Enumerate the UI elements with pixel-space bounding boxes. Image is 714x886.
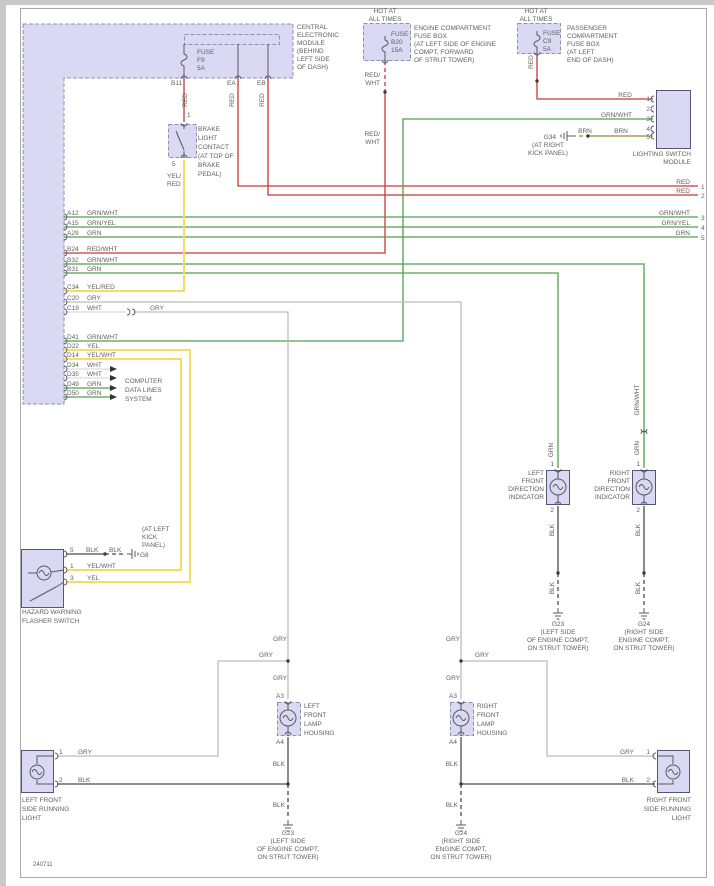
ground-g23-indicator-icon [553, 608, 563, 619]
label-g23: G23 [282, 830, 295, 837]
label-grn: GRN [548, 442, 555, 457]
label-blk: BLK [78, 777, 91, 784]
label-red-wht: RED/WHT [87, 246, 117, 253]
label-grn: GRN [87, 381, 102, 388]
label-all-times: ALL TIMES [520, 16, 554, 23]
label-wht: WHT [87, 362, 102, 369]
label-d50: D50 [67, 390, 79, 397]
label-blk: BLK [273, 761, 286, 768]
label-2: 2 [646, 106, 650, 113]
label-system: SYSTEM [125, 396, 152, 403]
label-yel: YEL/ [167, 173, 181, 180]
pin-connector-icon [651, 106, 654, 112]
label-1: 1 [701, 184, 705, 191]
label-a15: A15 [67, 220, 79, 227]
label-f9: F9 [197, 57, 205, 64]
label-of-strut-tower: OF STRUT TOWER) [414, 57, 474, 64]
label-lighting-switch: LIGHTING SWITCH [633, 151, 691, 158]
label-yel-red: YEL/RED [87, 284, 115, 291]
label-grn-yel: GRN/YEL [661, 220, 690, 227]
label-compartment: COMPARTMENT [567, 33, 617, 40]
label-red: RED [182, 93, 189, 107]
label-red: RED [229, 93, 236, 107]
label-red: RED [676, 188, 690, 195]
label-blk: BLK [86, 547, 99, 554]
label-1: 1 [646, 96, 650, 103]
splice-dot [459, 782, 462, 785]
label-a3: A3 [449, 693, 457, 700]
data-line-arrow-icon [110, 375, 117, 381]
label-grn-wht: GRN/WHT [87, 257, 118, 264]
label-fuse-box: FUSE BOX [414, 33, 448, 40]
label-yel: YEL [87, 343, 100, 350]
label-fuse: FUSE [197, 49, 215, 56]
label-blk: BLK [446, 802, 459, 809]
label-d14: D14 [67, 352, 79, 359]
wire-redwht-to-b24 [64, 92, 385, 253]
wire-gry-c20-to-right-lamp [64, 302, 461, 699]
label-gry: GRY [273, 675, 288, 682]
label-brn: BRN [578, 128, 592, 135]
ground-g34-lsm-icon [561, 131, 572, 141]
label-gry: GRY [259, 652, 274, 659]
label-blk: BLK [109, 547, 122, 554]
label-front: FRONT [522, 478, 544, 485]
page-border [21, 9, 707, 878]
label-central: CENTRAL [297, 24, 328, 31]
label-left-side: LEFT SIDE [297, 56, 330, 63]
label-housing: HOUSING [304, 730, 334, 737]
splice-dot [556, 571, 559, 574]
label-gry: GRY [620, 749, 635, 756]
label-b24: B24 [67, 246, 79, 253]
label-a4: A4 [276, 739, 284, 746]
label-yel-wht: YEL/WHT [87, 563, 116, 570]
label-red: RED/ [364, 72, 380, 79]
splice-dot [642, 571, 645, 574]
label-grn-wht: GRN/WHT [634, 384, 641, 415]
label-red: RED [259, 93, 266, 107]
label-pedal: PEDAL) [198, 171, 221, 178]
label-light: LIGHT [22, 815, 41, 822]
label-grn: GRN [87, 390, 102, 397]
wiring-diagram-page: HOT ATALL TIMESENGINE COMPARTMENTFUSE BO… [0, 0, 714, 886]
label-grn-wht: GRN/WHT [601, 112, 632, 119]
label-engine-compartment: ENGINE COMPARTMENT [414, 25, 491, 32]
label-right: RIGHT [477, 703, 497, 710]
label-5a: 5A [197, 65, 206, 72]
splice-dot [286, 782, 289, 785]
label-kick-panel: KICK PANEL) [528, 150, 568, 157]
label-right-side: (RIGHT SIDE [624, 629, 664, 636]
lighting-switch-module [657, 91, 691, 149]
wiring-diagram-canvas: HOT ATALL TIMESENGINE COMPARTMENTFUSE BO… [0, 0, 714, 886]
label-brake: BRAKE [198, 126, 221, 133]
label-blk: BLK [622, 777, 635, 784]
label-red: RED [618, 92, 632, 99]
central-electronic-module [23, 24, 293, 404]
pin-connector-icon [64, 551, 67, 557]
label-light: LIGHT [198, 135, 217, 142]
label-all-times: ALL TIMES [369, 16, 403, 23]
label-panel: PANEL) [142, 542, 165, 549]
scan-edge-top [0, 0, 714, 5]
label-yel-wht: YEL/WHT [87, 352, 116, 359]
label-g23: G23 [552, 621, 565, 628]
label-light: LIGHT [672, 815, 691, 822]
data-line-arrow-icon [110, 394, 117, 400]
label-1: 1 [550, 461, 554, 468]
label-eb: EB [257, 80, 266, 87]
label-right: RIGHT [610, 470, 630, 477]
label-blk: BLK [273, 802, 286, 809]
label-1: 1 [646, 749, 650, 756]
label-gry: GRY [446, 636, 461, 643]
label-grn: GRN [87, 266, 102, 273]
label-front: FRONT [477, 712, 499, 719]
brake-light-contact [169, 125, 197, 158]
label-blk: BLK [635, 581, 642, 594]
hazard-warning-flasher-switch [22, 550, 64, 608]
label-flasher-switch: FLASHER SWITCH [22, 618, 80, 625]
label-4: 4 [701, 225, 705, 232]
passenger-compartment-fuse-box [518, 24, 561, 54]
label-d34: D34 [67, 362, 79, 369]
label-2: 2 [636, 507, 640, 514]
wire-gry-c19-to-left-lamp [134, 312, 288, 699]
label-d41: D41 [67, 334, 79, 341]
pin-connector-icon [651, 126, 654, 132]
label-of-dash: OF DASH) [297, 64, 328, 71]
label-side-running: SIDE RUNNING [644, 806, 691, 813]
label-5: 5 [701, 235, 705, 242]
label-wht: WHT [87, 305, 102, 312]
label-grn-yel: GRN/YEL [87, 220, 116, 227]
label-d35: D35 [67, 371, 79, 378]
label-ea: EA [227, 80, 236, 87]
label-brake: BRAKE [198, 162, 221, 169]
label-d49: D49 [67, 381, 79, 388]
label-1: 1 [59, 749, 63, 756]
label-5: 5 [646, 134, 650, 141]
label-3: 3 [701, 215, 705, 222]
label-engine-compt: ENGINE COMPT, [435, 846, 486, 853]
label-c34: C34 [67, 284, 79, 291]
label-lamp: LAMP [304, 721, 322, 728]
label-red: RED [528, 55, 535, 69]
label-left-side: (LEFT SIDE [541, 629, 577, 636]
label-left-side: (LEFT SIDE [271, 838, 307, 845]
label-3: 3 [70, 575, 74, 582]
wire-grnwht-b32-to-right-indicator [64, 264, 644, 468]
label-front: FRONT [608, 478, 630, 485]
wire-yelwht-d14-to-hazard-1 [64, 359, 181, 570]
wire-yelred-c34-to-brake-contact [64, 160, 184, 291]
ground-g8-hazard-icon [127, 549, 138, 559]
label-front: FRONT [304, 712, 326, 719]
label-end-of-dash: END OF DASH) [567, 57, 614, 64]
label-1: 1 [636, 461, 640, 468]
splice-dot [535, 79, 538, 82]
label-gry: GRY [475, 652, 490, 659]
label-module: MODULE [297, 40, 325, 47]
pin-connector-icon [127, 309, 130, 315]
label-on-strut-tower: ON STRUT TOWER) [527, 645, 588, 652]
label-hazard-warning: HAZARD WARNING [22, 609, 82, 616]
label-a29: A29 [67, 230, 79, 237]
pin-connector-icon [64, 579, 67, 585]
label-kick: KICK [142, 534, 158, 541]
label-c20: C20 [67, 295, 79, 302]
label-grn-wht: GRN/WHT [659, 210, 690, 217]
pin-connector-icon [64, 567, 67, 573]
label-240711: 240711 [33, 862, 53, 868]
label-yel: YEL [87, 575, 100, 582]
label-b11: B11 [171, 80, 182, 87]
label-at-left: (AT LEFT [142, 526, 170, 533]
engine-compartment-fuse-box [364, 24, 411, 61]
label-at-left: (AT LEFT [567, 49, 595, 56]
pin-connector-icon [132, 309, 135, 315]
label-gry: GRY [87, 295, 102, 302]
label-5: 5 [172, 161, 176, 168]
label-left-front: LEFT FRONT [22, 797, 62, 804]
label-passenger: PASSENGER [567, 25, 607, 32]
label-lamp: LAMP [477, 721, 495, 728]
label-direction: DIRECTION [508, 486, 544, 493]
label-a12: A12 [67, 210, 79, 217]
label-blk: BLK [549, 523, 556, 536]
label-computer: COMPUTER [125, 378, 163, 385]
label-grn-wht: GRN/WHT [87, 334, 118, 341]
label-5: 5 [70, 547, 74, 554]
label-of-engine-compt: OF ENGINE COMPT, [527, 637, 589, 644]
splice-dot [286, 659, 289, 662]
label-data-lines: DATA LINES [125, 387, 162, 394]
label-right-side: (RIGHT SIDE [441, 838, 481, 845]
label-blk: BLK [635, 523, 642, 536]
label-a3: A3 [276, 693, 284, 700]
data-line-arrow-icon [110, 366, 117, 372]
label-g24: G24 [638, 621, 651, 628]
label-indicator: INDICATOR [509, 494, 544, 501]
splice-dot [103, 552, 106, 555]
label-housing: HOUSING [477, 730, 507, 737]
label-on-strut-tower: ON STRUT TOWER) [430, 854, 491, 861]
label-at-top-of: (AT TOP OF [198, 153, 234, 160]
label-red: RED [167, 181, 181, 188]
label-hot-at: HOT AT [525, 8, 548, 15]
label-4: 4 [646, 126, 650, 133]
scan-edge-left [0, 0, 6, 886]
label-wht: WHT [365, 139, 380, 146]
label-2: 2 [701, 193, 705, 200]
label-indicator: INDICATOR [595, 494, 630, 501]
label-contact: CONTACT [198, 144, 229, 151]
label-grn: GRN [87, 230, 102, 237]
label-b32: B32 [67, 257, 79, 264]
label-on-strut-tower: ON STRUT TOWER) [257, 854, 318, 861]
label-gry: GRY [273, 636, 288, 643]
label-on-strut-tower: ON STRUT TOWER) [613, 645, 674, 652]
splice-dot [383, 90, 386, 93]
label-red: RED/ [364, 131, 380, 138]
label-at-left-side-of-engine: (AT LEFT SIDE OF ENGINE [414, 41, 497, 48]
label-c19: C19 [67, 305, 79, 312]
label-1: 1 [187, 112, 191, 119]
label-engine-compt: ENGINE COMPT, [618, 637, 669, 644]
label-a4: A4 [449, 739, 457, 746]
label-fuse: FUSE [391, 31, 409, 38]
label-right-front: RIGHT FRONT [647, 797, 691, 804]
label-at-right: (AT RIGHT [532, 142, 564, 149]
label-left: LEFT [304, 703, 320, 710]
label-1: 1 [70, 563, 74, 570]
label-c9: C9 [543, 38, 552, 45]
label-wht: WHT [87, 371, 102, 378]
label-of-engine-compt: OF ENGINE COMPT, [257, 846, 319, 853]
label-grn: GRN [634, 440, 641, 455]
data-line-arrow-icon [110, 385, 117, 391]
label-gry: GRY [150, 305, 165, 312]
label-g8: G8 [140, 552, 149, 559]
label-2: 2 [550, 507, 554, 514]
label-fuse: FUSE [543, 30, 561, 37]
label-b31: B31 [67, 266, 79, 273]
label-b20: B20 [391, 39, 403, 46]
label-d22: D22 [67, 343, 79, 350]
label-fuse-box: FUSE BOX [567, 41, 601, 48]
label-g34: G34 [544, 134, 557, 141]
label-hot-at: HOT AT [374, 8, 397, 15]
label-left: LEFT [528, 470, 544, 477]
label-grn-wht: GRN/WHT [87, 210, 118, 217]
label-wht: WHT [365, 80, 380, 87]
label-grn: GRN [676, 230, 691, 237]
label-gry: GRY [446, 675, 461, 682]
label-2: 2 [59, 777, 63, 784]
label-red: RED [676, 179, 690, 186]
label-compt-forward: COMPT, FORWARD [414, 49, 474, 56]
label-direction: DIRECTION [594, 486, 630, 493]
label-gry: GRY [78, 749, 93, 756]
label-electronic: ELECTRONIC [297, 32, 339, 39]
wire-gry-left-branch-to-running-light [57, 661, 288, 756]
label-blk: BLK [549, 581, 556, 594]
label-behind: (BEHIND [297, 48, 324, 55]
label-module: MODULE [663, 159, 691, 166]
label-blk: BLK [446, 761, 459, 768]
label-3: 3 [646, 116, 650, 123]
label-brn: BRN [614, 128, 628, 135]
ground-g24-indicator-icon [639, 608, 649, 619]
splice-dot [459, 659, 462, 662]
label-g24: G24 [455, 830, 468, 837]
label-15a: 15A [391, 47, 403, 54]
label-2: 2 [646, 777, 650, 784]
label-5a: 5A [543, 46, 552, 53]
label-side-running: SIDE RUNNING [22, 806, 69, 813]
